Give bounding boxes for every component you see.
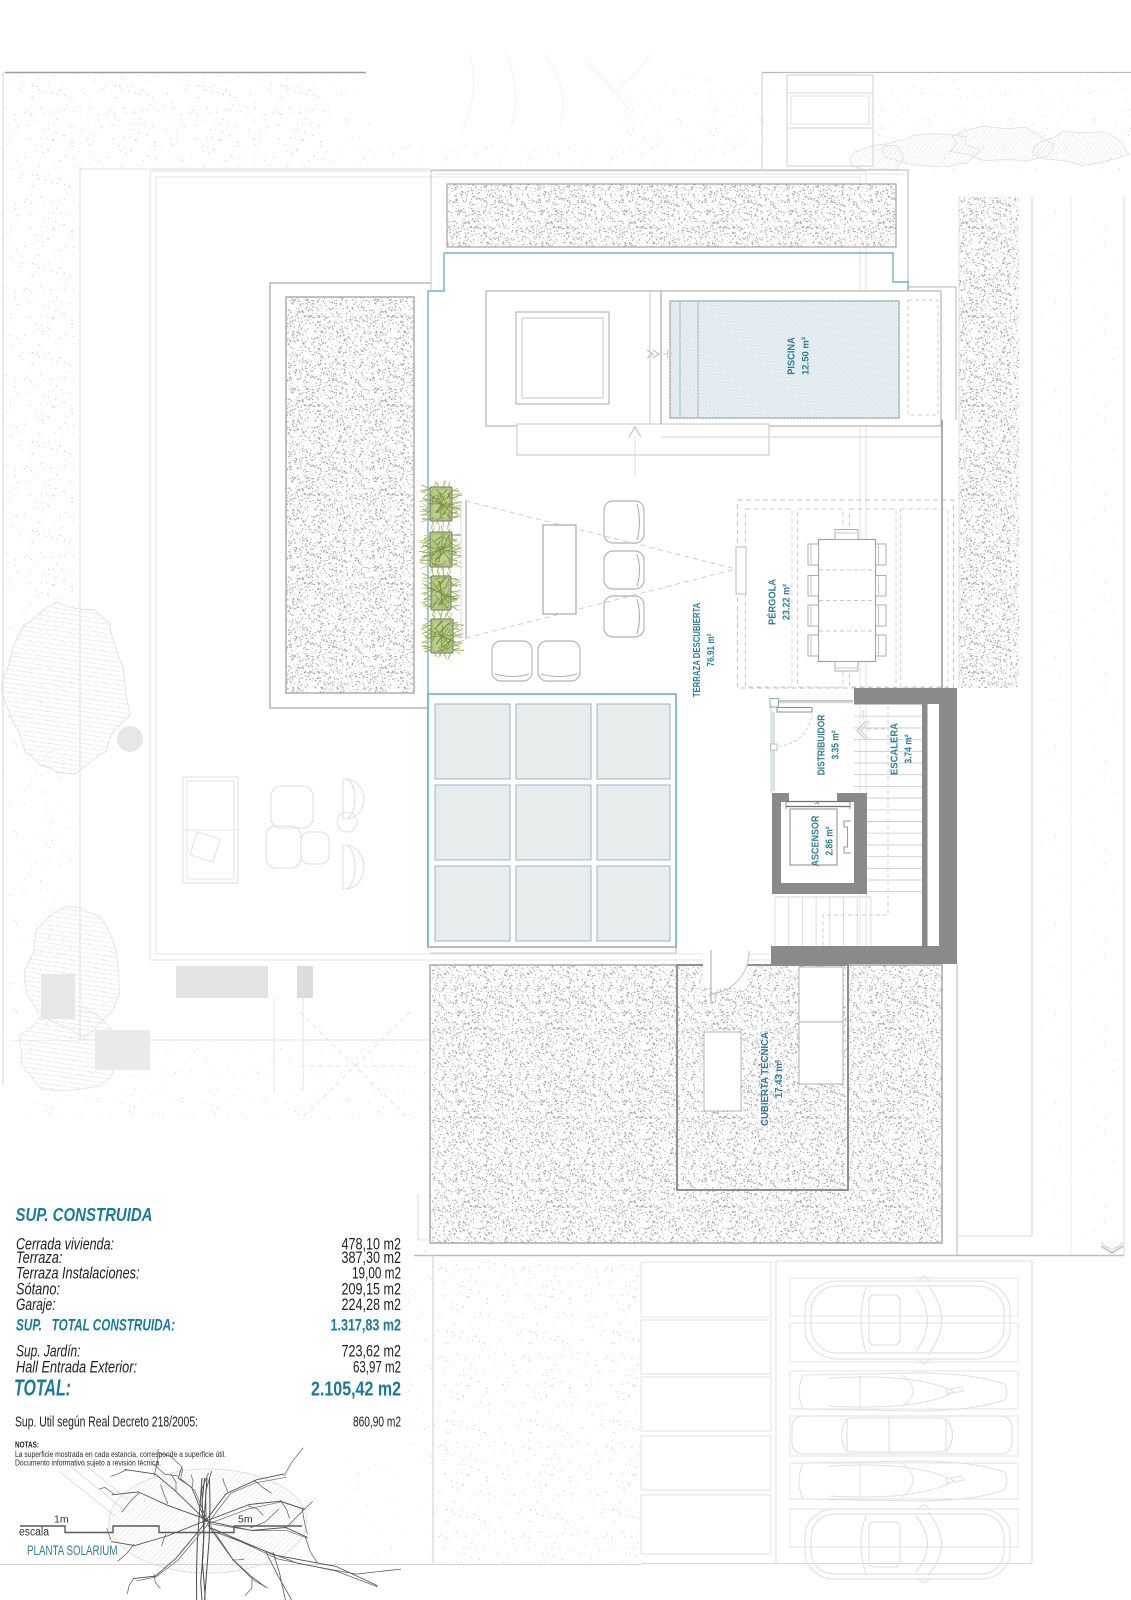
svg-text:PISCINA: PISCINA	[787, 337, 798, 375]
svg-text:TOTAL:: TOTAL:	[14, 1375, 71, 1401]
svg-text:12.50 m²: 12.50 m²	[801, 337, 812, 375]
svg-text:860,90 m2: 860,90 m2	[353, 1414, 401, 1430]
svg-text:escala: escala	[19, 1527, 50, 1539]
svg-text:TERRAZA DESCUBIERTA: TERRAZA DESCUBIERTA	[691, 602, 703, 697]
svg-text:ASCENSOR: ASCENSOR	[810, 815, 822, 866]
svg-text:23.22 m²: 23.22 m²	[782, 583, 793, 620]
svg-text:Hall Entrada Exterior:: Hall Entrada Exterior:	[16, 1357, 137, 1376]
svg-text:63,97 m2: 63,97 m2	[353, 1357, 401, 1376]
svg-text:Sup. Util según Real Decreto 2: Sup. Util según Real Decreto 218/2005:	[15, 1414, 198, 1430]
svg-text:2.86 m²: 2.86 m²	[825, 826, 836, 856]
svg-text:NOTAS:: NOTAS:	[15, 1441, 39, 1450]
svg-text:Garaje:: Garaje:	[16, 1295, 56, 1314]
svg-text:17.43 m²: 17.43 m²	[774, 1059, 785, 1098]
svg-text:1m: 1m	[54, 1514, 69, 1526]
svg-text:SUP. CONSTRUIDA: SUP. CONSTRUIDA	[16, 1205, 153, 1225]
svg-text:5m: 5m	[238, 1514, 253, 1526]
svg-text:SUP. TOTAL CONSTRUIDA:: SUP. TOTAL CONSTRUIDA:	[16, 1316, 175, 1335]
svg-text:ESCALERA: ESCALERA	[889, 723, 901, 775]
svg-text:224,28 m2: 224,28 m2	[342, 1295, 402, 1314]
svg-text:3.74 m²: 3.74 m²	[904, 734, 915, 764]
svg-text:2.105,42 m2: 2.105,42 m2	[311, 1378, 401, 1401]
svg-text:PLANTA SOLARIUM: PLANTA SOLARIUM	[27, 1543, 118, 1558]
svg-text:76.91 m²: 76.91 m²	[706, 633, 717, 667]
svg-text:CUBIERTA TÉCNICA: CUBIERTA TÉCNICA	[758, 1032, 771, 1126]
svg-text:DISTRIBUIDOR: DISTRIBUIDOR	[816, 714, 828, 775]
svg-text:Documento informativo sujeto a: Documento informativo sujeto a revisión …	[15, 1459, 161, 1468]
svg-text:3.35 m²: 3.35 m²	[831, 730, 842, 760]
svg-text:PÉRGOLA: PÉRGOLA	[766, 579, 779, 625]
svg-text:1.317,83 m2: 1.317,83 m2	[331, 1316, 402, 1335]
